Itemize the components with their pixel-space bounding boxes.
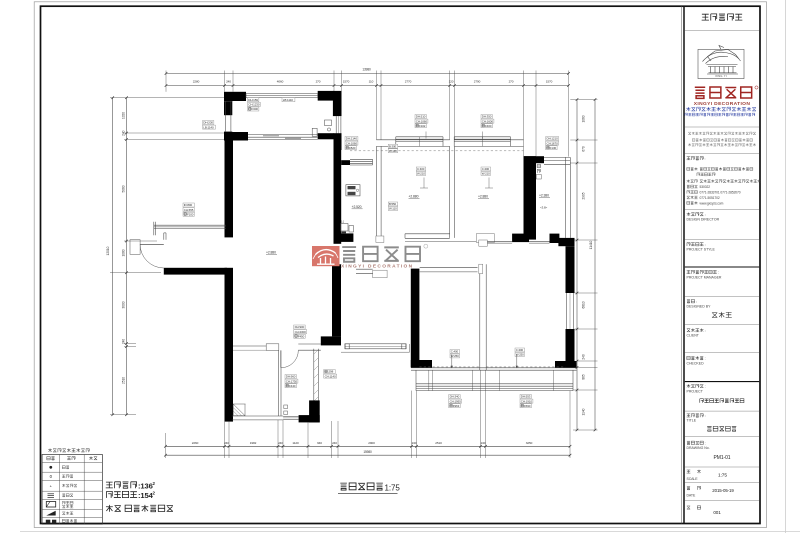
svg-text:DH:159: DH:159 (248, 98, 258, 102)
svg-text:C:400: C:400 (417, 167, 425, 171)
svg-text:F440: F440 (289, 384, 296, 388)
svg-text:CH:1140: CH:1140 (325, 374, 336, 378)
svg-text:DH:340: DH:340 (450, 395, 460, 399)
svg-text:W:210: W:210 (417, 172, 425, 176)
svg-text:+2.880: +2.880 (266, 251, 276, 255)
svg-text::136: :136 (138, 482, 153, 491)
svg-text:+2.880: +2.880 (478, 195, 488, 199)
svg-text:1:75: 1:75 (385, 484, 401, 493)
svg-text:F100: F100 (187, 212, 194, 216)
svg-text:240: 240 (412, 441, 417, 445)
svg-text::: : (718, 271, 719, 275)
svg-text:DH:350: DH:350 (482, 115, 492, 119)
svg-text:240: 240 (481, 441, 486, 445)
svg-text:DH:553: DH:553 (521, 395, 531, 399)
svg-text:1080: 1080 (122, 249, 126, 256)
svg-text:240: 240 (332, 441, 337, 445)
svg-text:12010: 12010 (106, 246, 110, 255)
svg-text:DESIGN DIRECTOR: DESIGN DIRECTOR (687, 218, 720, 222)
svg-text:670: 670 (582, 146, 586, 152)
svg-text:F450: F450 (298, 334, 305, 338)
svg-text:SCALE: SCALE (687, 477, 699, 481)
svg-text:B:550: B:550 (389, 202, 397, 206)
svg-text:PROJECT: PROJECT (687, 389, 704, 393)
svg-text:DATE: DATE (687, 494, 696, 498)
svg-text::: : (705, 385, 706, 389)
svg-text:CH:1730: CH:1730 (286, 379, 298, 383)
svg-text:C:400: C:400 (451, 350, 459, 354)
svg-text:1320: 1320 (122, 112, 126, 119)
svg-text:1570: 1570 (343, 80, 350, 84)
svg-text:240: 240 (226, 80, 231, 84)
svg-text:2900: 2900 (368, 441, 375, 445)
svg-text::: : (696, 300, 697, 304)
svg-text::154: :154 (138, 491, 154, 500)
svg-text:DH:200: DH:200 (203, 121, 213, 125)
svg-text:F963: F963 (453, 404, 460, 408)
svg-text:XINGYI DECORATION: XINGYI DECORATION (341, 263, 413, 269)
svg-text:+2.520: +2.520 (352, 205, 362, 209)
svg-text:DH:900: DH:900 (295, 325, 305, 329)
svg-text:CH:1060: CH:1060 (346, 141, 358, 145)
svg-text:<3.8>: <3.8> (540, 206, 548, 210)
svg-text::298: :298 (328, 370, 334, 374)
svg-text:940: 940 (317, 441, 322, 445)
svg-text:DH:2140: DH:2140 (346, 137, 358, 141)
svg-text::: : (705, 441, 706, 445)
svg-text:W:250: W:250 (516, 353, 524, 357)
svg-text:CH:1670: CH:1670 (547, 141, 559, 145)
svg-text:001: 001 (713, 510, 721, 515)
svg-text:DH:1210: DH:1210 (547, 137, 559, 141)
svg-text::: : (705, 357, 706, 361)
svg-text:110: 110 (369, 80, 374, 84)
svg-text:B:30E: B:30E (389, 144, 397, 148)
svg-text:2260: 2260 (192, 441, 199, 445)
svg-text:1:75: 1:75 (718, 473, 727, 479)
svg-text:865: 865 (582, 374, 586, 380)
svg-text:270: 270 (509, 80, 514, 84)
svg-text:PM1-01: PM1-01 (714, 455, 731, 461)
svg-text:ID:800: ID:800 (184, 203, 193, 207)
svg-text:1140: 1140 (582, 408, 586, 415)
svg-text:W:250: W:250 (451, 354, 459, 358)
svg-text::: : (705, 213, 706, 217)
svg-text:5060: 5060 (122, 185, 126, 192)
svg-text:+2.380: +2.380 (539, 194, 549, 198)
svg-text:CH:655: CH:655 (184, 208, 194, 212)
svg-text:LB:1140: LB:1140 (203, 125, 214, 129)
svg-text:W:110: W:110 (389, 207, 397, 211)
svg-text:4060: 4060 (277, 80, 284, 84)
svg-text:2280: 2280 (193, 80, 200, 84)
svg-text:270: 270 (316, 80, 321, 84)
svg-text:DESIGNED BY: DESIGNED BY (687, 305, 712, 309)
svg-text:1120: 1120 (292, 441, 299, 445)
svg-text:TITLE: TITLE (687, 419, 697, 423)
svg-text:3000: 3000 (122, 301, 126, 308)
svg-text:CH:1910: CH:1910 (521, 399, 533, 403)
svg-text:XING YI: XING YI (715, 74, 727, 78)
svg-text:13980: 13980 (362, 67, 371, 71)
svg-text::: : (705, 157, 706, 161)
svg-text:1060: 1060 (582, 115, 586, 122)
svg-text:240: 240 (278, 441, 283, 445)
svg-text:0771-5051702: 0771-5051702 (700, 196, 720, 200)
svg-text::: : (705, 414, 706, 418)
svg-text:0771-2833701 0771-2852070: 0771-2833701 0771-2852070 (700, 191, 741, 195)
svg-text:2905: 2905 (582, 192, 586, 199)
svg-text:15980: 15980 (363, 450, 372, 454)
svg-text:DRAWING No.: DRAWING No. (687, 446, 710, 450)
svg-text:2510: 2510 (122, 377, 126, 384)
svg-text:F300: F300 (251, 107, 258, 111)
svg-text:CH:2300: CH:2300 (295, 330, 307, 334)
svg-text:F820: F820 (349, 146, 356, 150)
svg-text:XINGYI DECORATION: XINGYI DECORATION (694, 101, 751, 107)
svg-text:240: 240 (224, 441, 229, 445)
svg-text:www.gxsyzs.com: www.gxsyzs.com (700, 201, 724, 205)
svg-text:6810: 6810 (582, 301, 586, 308)
svg-text:C:400: C:400 (482, 167, 490, 171)
svg-text::: : (705, 243, 706, 247)
svg-text:3250: 3250 (526, 441, 533, 445)
svg-text:1982: 1982 (250, 441, 257, 445)
svg-text:DH:960: DH:960 (286, 375, 296, 379)
svg-text:CH:1060: CH:1060 (416, 119, 428, 123)
svg-text:CH:1993: CH:1993 (450, 399, 462, 403)
svg-text:F130: F130 (550, 146, 557, 150)
svg-text:CHECKED: CHECKED (687, 361, 705, 365)
svg-text:1570: 1570 (546, 80, 553, 84)
svg-text:F102: F102 (419, 124, 426, 128)
svg-text:2790: 2790 (474, 80, 481, 84)
svg-text:CLIENT: CLIENT (687, 334, 700, 338)
svg-text:2510: 2510 (435, 441, 442, 445)
svg-text:11410: 11410 (589, 240, 593, 249)
svg-text:120: 120 (449, 80, 454, 84)
svg-text:530022: 530022 (700, 185, 711, 189)
svg-text:C:400: C:400 (516, 348, 524, 352)
svg-text:PROJECT STYLE: PROJECT STYLE (687, 248, 716, 252)
svg-text:F690: F690 (524, 404, 531, 408)
svg-text:LB:1110: LB:1110 (283, 98, 293, 102)
svg-text::: : (705, 329, 706, 333)
svg-text:DH:510: DH:510 (416, 115, 426, 119)
svg-text:F400: F400 (485, 124, 492, 128)
svg-text:PROJECT MANAGER: PROJECT MANAGER (687, 275, 722, 279)
svg-text:2770: 2770 (405, 80, 412, 84)
svg-text:W:210: W:210 (482, 172, 490, 176)
svg-text:+2.880: +2.880 (409, 195, 419, 199)
svg-text:CH:1230: CH:1230 (248, 103, 260, 107)
svg-text:CH:1600: CH:1600 (482, 119, 494, 123)
svg-text:240: 240 (582, 354, 586, 360)
svg-text:2015-05-19: 2015-05-19 (712, 488, 734, 493)
